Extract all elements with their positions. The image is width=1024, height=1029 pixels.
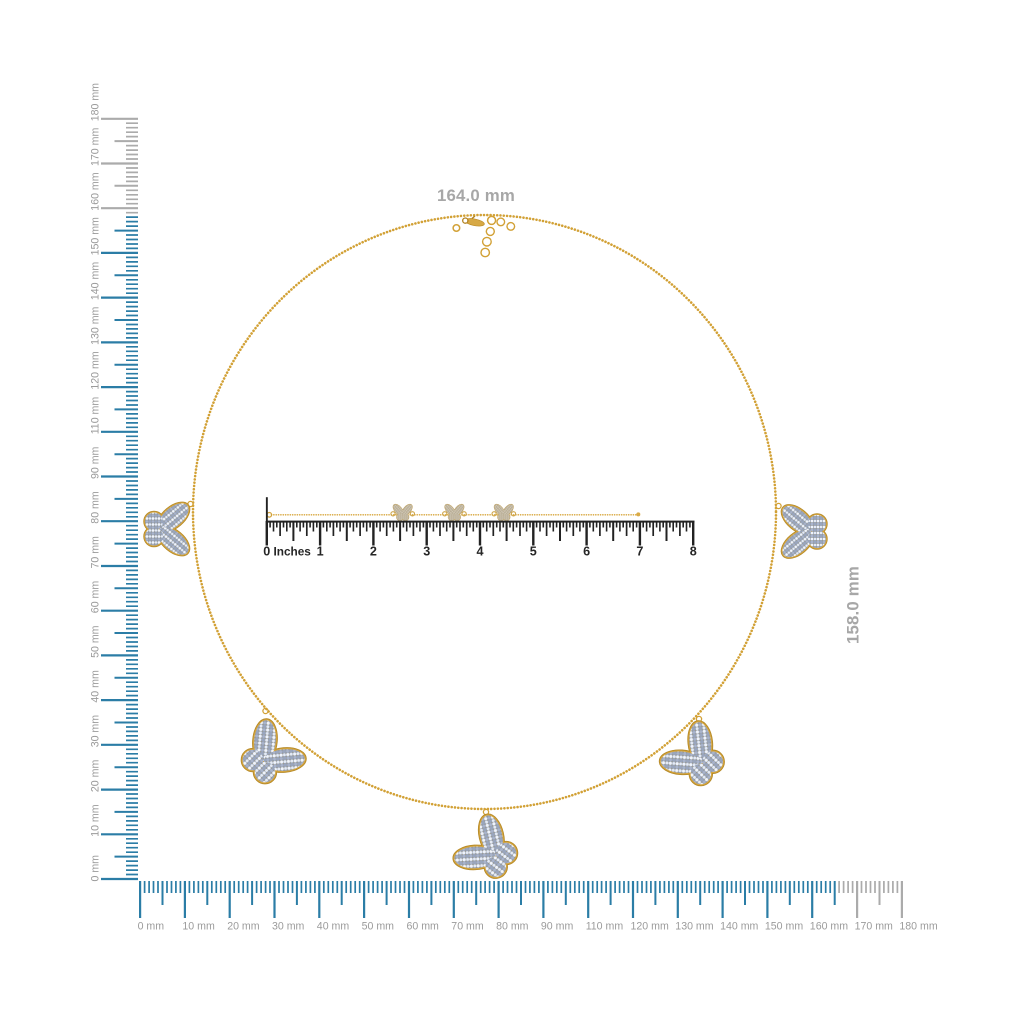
- svg-text:7: 7: [636, 545, 643, 559]
- svg-text:150 mm: 150 mm: [90, 217, 102, 255]
- svg-text:60 mm: 60 mm: [90, 581, 102, 614]
- svg-text:160 mm: 160 mm: [810, 921, 848, 933]
- svg-text:Inches: Inches: [274, 545, 312, 559]
- svg-text:70 mm: 70 mm: [90, 536, 102, 569]
- svg-text:60 mm: 60 mm: [407, 921, 440, 933]
- svg-text:164.0 mm: 164.0 mm: [437, 186, 515, 205]
- svg-text:140 mm: 140 mm: [90, 262, 102, 300]
- svg-text:3: 3: [423, 545, 430, 559]
- svg-text:120 mm: 120 mm: [631, 921, 669, 933]
- svg-text:130 mm: 130 mm: [90, 306, 102, 344]
- svg-text:10 mm: 10 mm: [90, 804, 102, 837]
- svg-text:1: 1: [317, 545, 324, 559]
- svg-text:20 mm: 20 mm: [90, 760, 102, 793]
- svg-text:80 mm: 80 mm: [90, 491, 102, 524]
- svg-text:0: 0: [263, 545, 270, 559]
- svg-text:110 mm: 110 mm: [90, 397, 102, 435]
- svg-text:40 mm: 40 mm: [317, 921, 350, 933]
- svg-text:120 mm: 120 mm: [90, 351, 102, 389]
- svg-text:80 mm: 80 mm: [496, 921, 529, 933]
- svg-text:8: 8: [690, 545, 697, 559]
- svg-text:150 mm: 150 mm: [765, 921, 803, 933]
- svg-text:4: 4: [476, 545, 483, 559]
- svg-text:170 mm: 170 mm: [90, 128, 102, 166]
- svg-text:90 mm: 90 mm: [541, 921, 574, 933]
- svg-text:40 mm: 40 mm: [90, 670, 102, 703]
- svg-text:180 mm: 180 mm: [899, 921, 937, 933]
- svg-text:158.0 mm: 158.0 mm: [844, 566, 863, 644]
- svg-text:180 mm: 180 mm: [90, 83, 102, 121]
- svg-text:110 mm: 110 mm: [586, 921, 624, 933]
- svg-text:20 mm: 20 mm: [227, 921, 260, 933]
- svg-text:5: 5: [530, 545, 537, 559]
- svg-text:50 mm: 50 mm: [362, 921, 395, 933]
- svg-text:0 mm: 0 mm: [90, 855, 102, 882]
- svg-text:160 mm: 160 mm: [90, 172, 102, 210]
- svg-text:0 mm: 0 mm: [138, 921, 165, 933]
- svg-text:6: 6: [583, 545, 590, 559]
- svg-text:10 mm: 10 mm: [182, 921, 215, 933]
- svg-text:50 mm: 50 mm: [90, 625, 102, 658]
- svg-text:30 mm: 30 mm: [90, 715, 102, 748]
- svg-text:170 mm: 170 mm: [855, 921, 893, 933]
- svg-text:130 mm: 130 mm: [675, 921, 713, 933]
- svg-text:30 mm: 30 mm: [272, 921, 305, 933]
- svg-text:70 mm: 70 mm: [451, 921, 484, 933]
- svg-text:90 mm: 90 mm: [90, 446, 102, 479]
- svg-text:140 mm: 140 mm: [720, 921, 758, 933]
- svg-text:2: 2: [370, 545, 377, 559]
